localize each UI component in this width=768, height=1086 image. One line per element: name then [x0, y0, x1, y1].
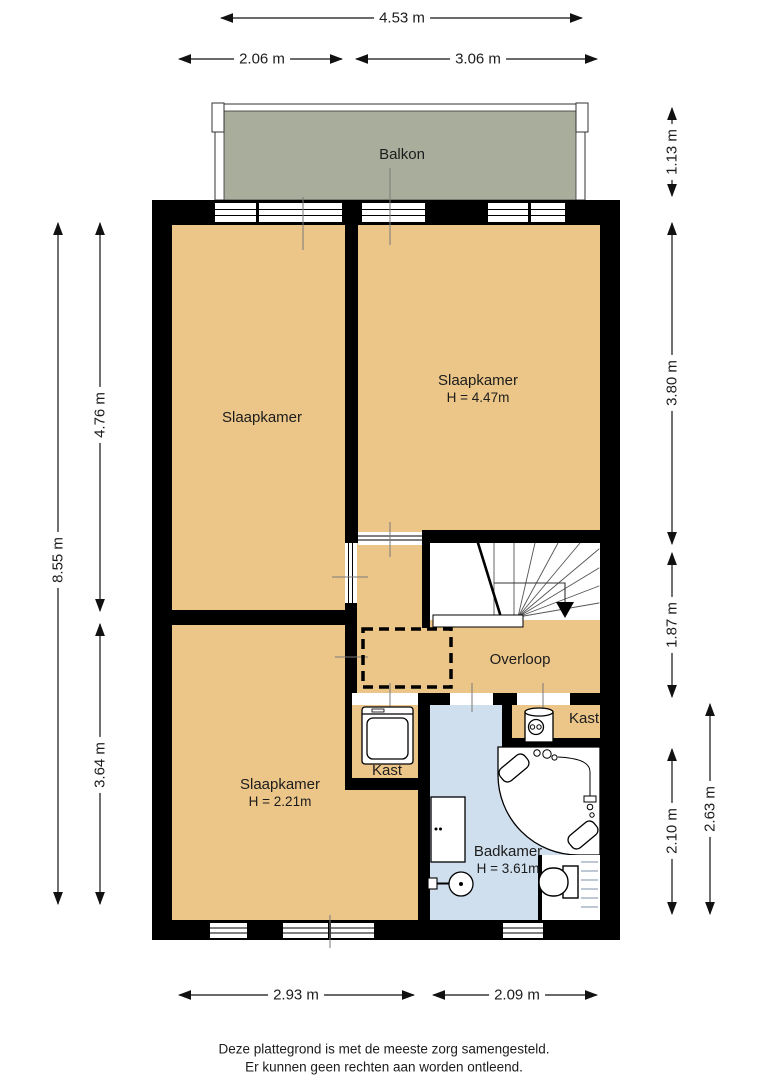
label-overloop: Overloop: [490, 651, 551, 669]
window-bottom-left-small: [207, 923, 250, 938]
dim-bottom-right: 2.09 m: [489, 987, 545, 1004]
dim-top-total: 4.53 m: [374, 10, 430, 27]
balcony-post-right: [576, 103, 588, 132]
toilet-icon: [539, 866, 578, 898]
vanity-cabinet-icon: [431, 797, 465, 862]
dim-right-middle: 1.87 m: [664, 597, 681, 653]
floorplan-canvas: 4.53 m 2.06 m 3.06 m 8.55 m 4.76 m 3.64 …: [0, 0, 768, 1086]
stair-bottom-tread: [433, 615, 523, 627]
window-top-right: [485, 203, 568, 222]
boiler-icon: [525, 708, 553, 742]
door-slaapkamer-left: [345, 543, 357, 603]
washing-machine-icon: [362, 707, 413, 764]
label-slaapkamer-left: Slaapkamer: [222, 409, 302, 427]
room-name: Slaapkamer: [438, 372, 518, 390]
room-height: H = 2.21m: [240, 794, 320, 810]
disclaimer-text: Deze plattegrond is met de meeste zorg s…: [219, 1040, 550, 1075]
room-name: Slaapkamer: [240, 776, 320, 794]
label-badkamer: Badkamer H = 3.61m: [474, 843, 542, 877]
toilet-area: [539, 855, 600, 920]
label-kast-wasmachine: Kast: [372, 762, 402, 780]
balcony-post-left: [212, 103, 224, 132]
opening-kast-wasmachine: [352, 693, 418, 705]
dim-bottom-left: 2.93 m: [268, 987, 324, 1004]
disclaimer-line-1: Deze plattegrond is met de meeste zorg s…: [219, 1040, 550, 1058]
label-slaapkamer-bottom: Slaapkamer H = 2.21m: [240, 776, 320, 810]
window-bottom-bathroom: [500, 923, 546, 938]
staircase: [430, 543, 600, 627]
dim-left-lower: 3.64 m: [92, 737, 109, 793]
dim-top-left: 2.06 m: [234, 51, 290, 68]
room-name: Badkamer: [474, 843, 542, 861]
dim-top-right: 3.06 m: [450, 51, 506, 68]
dim-right-lower-total: 2.63 m: [702, 781, 719, 837]
dim-right-balcony: 1.13 m: [664, 124, 681, 180]
label-slaapkamer-right: Slaapkamer H = 4.47m: [438, 372, 518, 406]
dim-right-upper: 3.80 m: [664, 355, 681, 411]
room-height: H = 4.47m: [438, 390, 518, 406]
balcony-door: [362, 203, 425, 222]
room-height: H = 3.61m: [474, 861, 542, 877]
disclaimer-line-2: Er kunnen geen rechten aan worden ontlee…: [219, 1058, 550, 1076]
window-top-left: [212, 203, 345, 222]
label-balkon: Balkon: [379, 146, 425, 164]
dim-left-upper: 4.76 m: [92, 387, 109, 443]
dim-right-lower-inner: 2.10 m: [664, 803, 681, 859]
label-kast-boiler: Kast: [569, 710, 599, 728]
window-bottom-left-large: [280, 923, 377, 938]
dim-left-total: 8.55 m: [50, 532, 67, 588]
